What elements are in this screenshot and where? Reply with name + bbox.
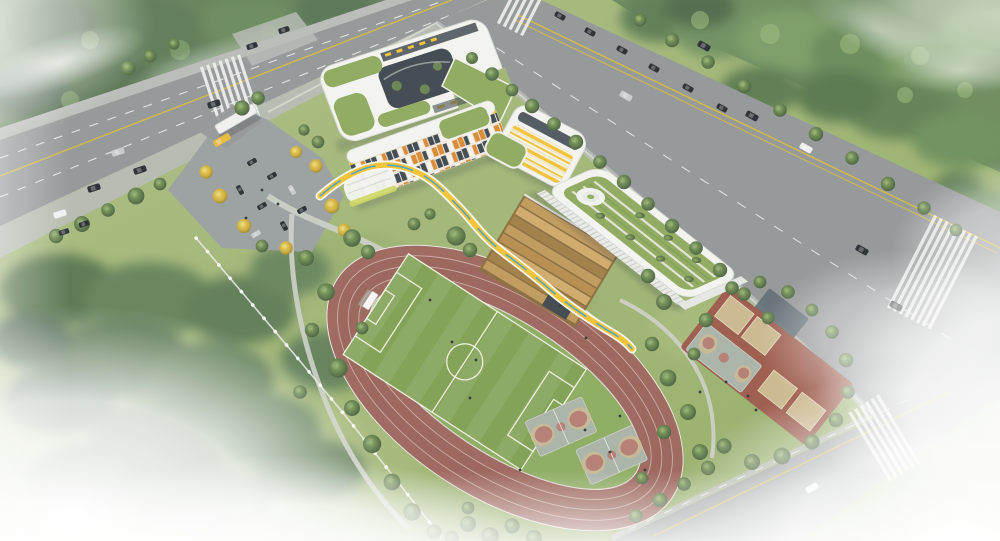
fog <box>0 0 1000 541</box>
aerial-rendering <box>0 0 1000 541</box>
campus-scene <box>0 0 1000 541</box>
